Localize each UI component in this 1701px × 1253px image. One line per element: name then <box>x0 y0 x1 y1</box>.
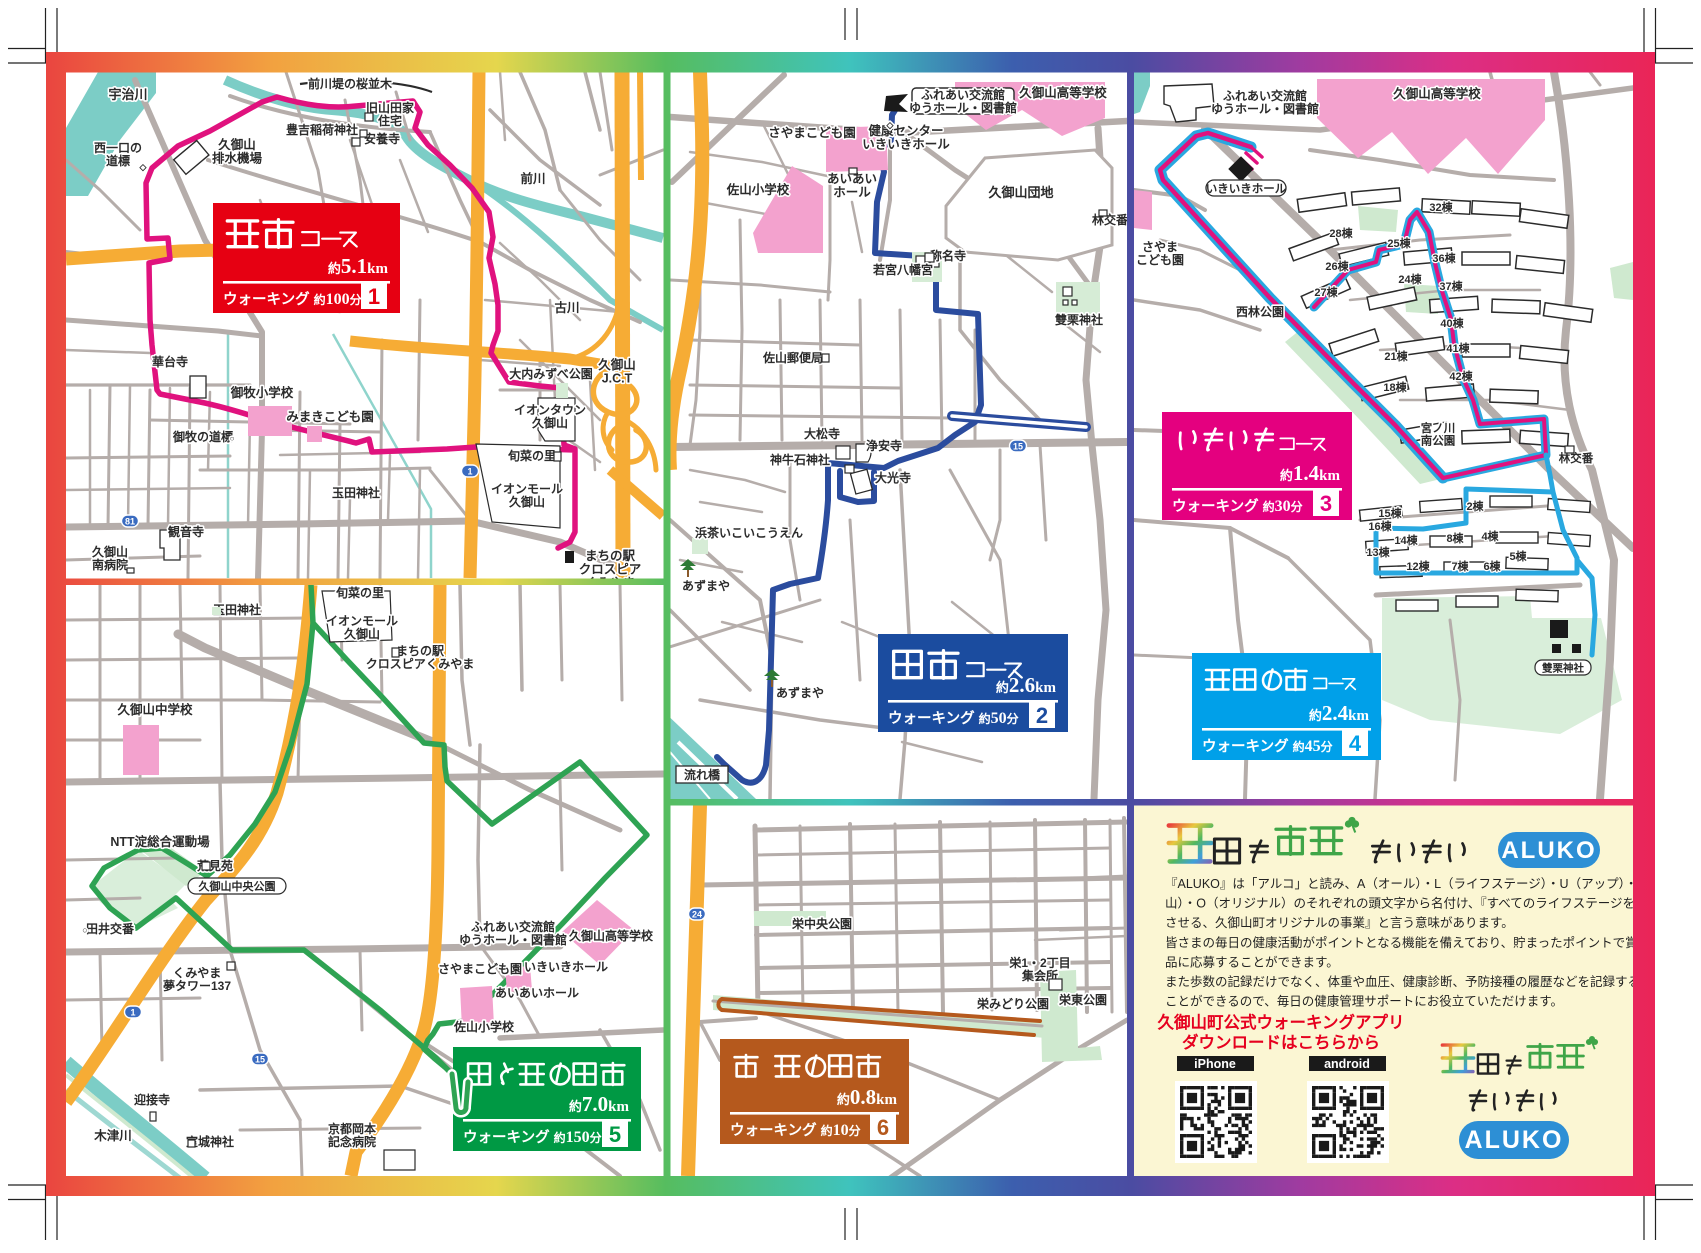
svg-text:16棟: 16棟 <box>1368 519 1392 533</box>
svg-text:15: 15 <box>1013 442 1023 452</box>
svg-text:佐山郵便局: 佐山郵便局 <box>762 350 823 365</box>
svg-text:南病院: 南病院 <box>92 557 128 572</box>
svg-text:◇: ◇ <box>139 162 148 172</box>
svg-text:ダウンロードはこちらから: ダウンロードはこちらから <box>1182 1032 1380 1052</box>
svg-text:前川: 前川 <box>520 171 545 186</box>
svg-text:ふれあい交流館: ふれあい交流館 <box>1223 88 1307 103</box>
svg-text:さやまこども園: さやまこども園 <box>768 126 856 140</box>
svg-text:久御山高等学校: 久御山高等学校 <box>1018 85 1107 100</box>
svg-text:J.C.T: J.C.T <box>602 372 633 386</box>
svg-text:久御山中学校: 久御山中学校 <box>116 702 193 717</box>
svg-text:NTT淀総合運動場: NTT淀総合運動場 <box>110 834 210 849</box>
svg-text:山）・O（オリジナル）のそれぞれの頭文字から名付け、『すべて: 山）・O（オリジナル）のそれぞれの頭文字から名付け、『すべてのライフステージを向… <box>1165 896 1660 911</box>
svg-text:久御山: 久御山 <box>597 357 636 372</box>
svg-text:京都岡本: 京都岡本 <box>328 1121 376 1136</box>
svg-text:いきいきホール: いきいきホール <box>862 138 950 152</box>
svg-text:神牛石神社: 神牛石神社 <box>770 452 830 467</box>
svg-text:健康センター: 健康センター <box>868 123 943 138</box>
svg-text:称名寺: 称名寺 <box>930 248 966 263</box>
svg-text:久御山: 久御山 <box>217 137 256 152</box>
svg-text:浜茶いこいこうえん: 浜茶いこいこうえん <box>695 525 803 540</box>
svg-text:24棟: 24棟 <box>1398 272 1422 286</box>
svg-text:大松寺: 大松寺 <box>804 426 840 441</box>
svg-text:久御山団地: 久御山団地 <box>988 185 1053 200</box>
svg-text:32棟: 32棟 <box>1429 200 1453 214</box>
svg-text:2: 2 <box>1036 703 1048 728</box>
svg-text:5: 5 <box>609 1122 621 1147</box>
svg-text:古川: 古川 <box>554 300 579 315</box>
svg-text:イオンモール: イオンモール <box>326 614 398 628</box>
svg-text:久御山: 久御山 <box>509 494 545 509</box>
svg-text:旬菜の里: 旬菜の里 <box>335 585 384 600</box>
svg-text:あずまや: あずまや <box>776 685 824 700</box>
svg-text:若宮八幡宮: 若宮八幡宮 <box>872 262 933 277</box>
svg-text:みまきこども園: みまきこども園 <box>286 410 374 424</box>
svg-text:5棟: 5棟 <box>1509 549 1527 563</box>
svg-text:道標: 道標 <box>106 153 130 168</box>
svg-text:皆さまの毎日の健康活動がポイントとなる機能を備えており、貯ま: 皆さまの毎日の健康活動がポイントとなる機能を備えており、貯まったポイントで賞 <box>1165 935 1638 950</box>
svg-text:また歩数の記録だけでなく、体重や血圧、健康診断、予防接種の履: また歩数の記録だけでなく、体重や血圧、健康診断、予防接種の履歴などを記録する <box>1165 974 1640 989</box>
svg-text:○: ○ <box>230 434 235 443</box>
svg-text:大内みずべ公園: 大内みずべ公園 <box>509 366 592 381</box>
svg-text:宮ノ川: 宮ノ川 <box>1421 421 1456 435</box>
svg-text:ふれあい交流館: ふれあい交流館 <box>921 87 1005 102</box>
svg-text:夢タワー137: 夢タワー137 <box>163 978 231 993</box>
svg-text:ALUKO: ALUKO <box>1501 837 1596 864</box>
svg-text:観音寺: 観音寺 <box>168 524 204 539</box>
svg-text:御牧の道標: 御牧の道標 <box>172 429 233 444</box>
svg-text:81: 81 <box>125 517 135 527</box>
svg-text:ウォーキング 約150分: ウォーキング 約150分 <box>463 1128 602 1146</box>
svg-text:ゆうホール・図書館: ゆうホール・図書館 <box>1211 101 1319 116</box>
svg-text:ウォーキング 約45分: ウォーキング 約45分 <box>1202 737 1333 755</box>
svg-text:12棟: 12棟 <box>1406 559 1430 573</box>
svg-text:6: 6 <box>877 1115 889 1140</box>
svg-text:41棟: 41棟 <box>1446 341 1470 355</box>
svg-text:13棟: 13棟 <box>1366 545 1390 559</box>
svg-text:久御山中央公園: 久御山中央公園 <box>199 879 276 893</box>
svg-text:旬菜の里: 旬菜の里 <box>507 448 556 463</box>
svg-text:15: 15 <box>255 1055 265 1065</box>
svg-text:させる、久御山町オリジナルの事業』と言う意味があります。: させる、久御山町オリジナルの事業』と言う意味があります。 <box>1165 915 1514 930</box>
svg-text:いきいきホール: いきいきホール <box>524 960 608 974</box>
svg-text:6棟: 6棟 <box>1483 559 1501 573</box>
svg-text:栄中央公園: 栄中央公園 <box>791 916 852 931</box>
svg-text:3: 3 <box>1320 491 1332 516</box>
svg-text:久御山: 久御山 <box>344 626 380 641</box>
svg-text:久御山高等学校: 久御山高等学校 <box>1392 86 1481 101</box>
svg-text:雙栗神社: 雙栗神社 <box>1542 662 1584 675</box>
svg-text:大光寺: 大光寺 <box>875 470 911 485</box>
svg-text:40棟: 40棟 <box>1440 316 1464 330</box>
svg-text:排水機場: 排水機場 <box>212 151 263 166</box>
svg-text:木津川: 木津川 <box>93 1128 132 1143</box>
svg-text:御牧小学校: 御牧小学校 <box>230 385 294 400</box>
svg-text:ホール: ホール <box>833 186 871 200</box>
svg-text:37棟: 37棟 <box>1439 279 1463 293</box>
svg-text:林交番: 林交番 <box>1559 451 1594 465</box>
svg-text:前川堤の桜並木: 前川堤の桜並木 <box>308 76 393 91</box>
svg-text:宇治川: 宇治川 <box>108 87 147 102</box>
svg-text:栄みどり公園: 栄みどり公園 <box>976 996 1049 1011</box>
svg-text:クロスピアくみやま: クロスピアくみやま <box>366 657 474 671</box>
svg-text:あいあいホール: あいあいホール <box>495 986 579 1000</box>
svg-text:1: 1 <box>368 284 380 309</box>
svg-text:まちの駅: まちの駅 <box>585 548 636 563</box>
svg-text:クロスピア: クロスピア <box>579 563 642 577</box>
svg-text:まちの駅: まちの駅 <box>396 644 445 658</box>
svg-text:久御山町公式ウォーキングアプリ: 久御山町公式ウォーキングアプリ <box>1157 1012 1404 1032</box>
svg-text:『ALUKO』は「アルコ」と読み、A（オール）・L（ライフス: 『ALUKO』は「アルコ」と読み、A（オール）・L（ライフステージ）・U（アップ… <box>1165 876 1683 891</box>
svg-text:雙栗神社: 雙栗神社 <box>1055 312 1103 327</box>
svg-text:android: android <box>1324 1057 1370 1071</box>
svg-text:ことができるので、毎日の健康管理サポートにお役立ていただけま: ことができるので、毎日の健康管理サポートにお役立ていただけます。 <box>1165 994 1563 1009</box>
svg-text:華台寺: 華台寺 <box>152 354 188 369</box>
svg-text:住宅: 住宅 <box>378 113 402 128</box>
svg-text:玉田神社: 玉田神社 <box>332 485 380 500</box>
svg-text:品に応募することができます。: 品に応募することができます。 <box>1165 954 1339 969</box>
svg-text:28棟: 28棟 <box>1329 226 1353 240</box>
svg-text:24: 24 <box>692 910 702 920</box>
svg-text:1: 1 <box>130 1008 135 1018</box>
svg-text:25棟: 25棟 <box>1387 236 1411 250</box>
svg-text:15棟: 15棟 <box>1378 506 1402 520</box>
svg-text:ウォーキング 約10分: ウォーキング 約10分 <box>730 1121 861 1139</box>
svg-text:林交番: 林交番 <box>1092 212 1129 227</box>
svg-text:栄東公園: 栄東公園 <box>1058 992 1107 1007</box>
svg-text:記念病院: 記念病院 <box>328 1134 376 1149</box>
svg-text:14棟: 14棟 <box>1394 533 1418 547</box>
svg-text:○: ○ <box>82 925 87 935</box>
svg-text:久御山高等学校: 久御山高等学校 <box>569 928 654 943</box>
svg-text:安養寺: 安養寺 <box>364 131 400 146</box>
svg-text:18棟: 18棟 <box>1383 380 1407 394</box>
svg-text:4: 4 <box>1349 731 1362 756</box>
svg-text:久御山: 久御山 <box>532 415 568 430</box>
svg-text:さやまこども園: さやまこども園 <box>438 962 522 976</box>
svg-text:21棟: 21棟 <box>1384 349 1408 363</box>
svg-text:イオンモール: イオンモール <box>491 482 563 496</box>
svg-text:ALUKO: ALUKO <box>1465 1126 1564 1154</box>
svg-text:南公園: 南公園 <box>1421 434 1456 448</box>
svg-text:42棟: 42棟 <box>1449 369 1473 383</box>
svg-text:くみやま: くみやま <box>173 966 221 980</box>
svg-text:ウォーキング 約30分: ウォーキング 約30分 <box>1172 497 1303 515</box>
svg-text:2棟: 2棟 <box>1466 499 1484 513</box>
svg-text:8棟: 8棟 <box>1446 531 1464 545</box>
svg-text:いきいきホール: いきいきホール <box>1206 183 1287 196</box>
svg-text:iPhone: iPhone <box>1194 1057 1236 1071</box>
svg-text:田井交番: 田井交番 <box>86 921 135 936</box>
svg-text:豊吉稲荷神社: 豊吉稲荷神社 <box>286 122 358 137</box>
svg-text:ウォーキング 約50分: ウォーキング 約50分 <box>888 709 1019 727</box>
svg-text:栄1・2丁目: 栄1・2丁目 <box>1008 955 1070 970</box>
svg-text:7棟: 7棟 <box>1451 559 1469 573</box>
svg-text:西一口の: 西一口の <box>94 141 142 155</box>
svg-text:浄安寺: 浄安寺 <box>866 438 902 453</box>
svg-text:ふれあい交流館: ふれあい交流館 <box>471 919 555 934</box>
svg-text:26棟: 26棟 <box>1325 259 1349 273</box>
svg-text:ウォーキング 約100分: ウォーキング 約100分 <box>223 290 362 308</box>
svg-text:27棟: 27棟 <box>1314 285 1338 299</box>
svg-text:久御山: 久御山 <box>92 544 128 559</box>
svg-text:イオンタウン: イオンタウン <box>514 403 586 417</box>
svg-text:迎接寺: 迎接寺 <box>134 1092 170 1107</box>
svg-text:さやま: さやま <box>1142 240 1178 254</box>
svg-text:佐山小学校: 佐山小学校 <box>726 182 790 197</box>
svg-text:1: 1 <box>467 467 472 477</box>
svg-text:あずまや: あずまや <box>682 578 730 593</box>
svg-text:こども園: こども園 <box>1136 253 1184 267</box>
svg-text:西林公園: 西林公園 <box>1236 304 1284 319</box>
svg-text:4棟: 4棟 <box>1481 529 1499 543</box>
svg-text:流れ橋: 流れ橋 <box>684 767 721 782</box>
svg-text:佐山小学校: 佐山小学校 <box>453 1019 515 1034</box>
svg-text:ゆうホール・図書館: ゆうホール・図書館 <box>909 100 1017 115</box>
svg-text:ゆうホール・図書館: ゆうホール・図書館 <box>459 932 567 947</box>
svg-text:◇: ◇ <box>886 120 895 130</box>
svg-text:36棟: 36棟 <box>1432 251 1456 265</box>
